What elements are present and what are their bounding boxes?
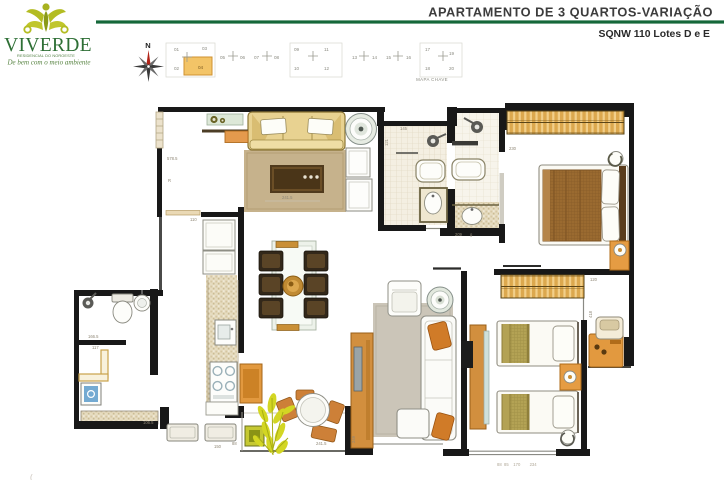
svg-text:18: 18 <box>425 66 431 71</box>
svg-text:88 85 170 234: 88 85 170 234 <box>497 462 537 467</box>
svg-text:10: 10 <box>294 66 300 71</box>
svg-text:14: 14 <box>372 55 378 60</box>
svg-text:08: 08 <box>274 55 280 60</box>
svg-text:R: R <box>168 178 171 183</box>
svg-text:230: 230 <box>509 146 517 151</box>
svg-text:MAPA CHAVE: MAPA CHAVE <box>416 77 448 82</box>
svg-text:117: 117 <box>92 345 99 350</box>
svg-text:241.5: 241.5 <box>282 195 293 200</box>
svg-text:106.5: 106.5 <box>143 420 154 425</box>
svg-text:09: 09 <box>294 47 300 52</box>
svg-text:07: 07 <box>254 55 260 60</box>
svg-text:N: N <box>145 41 150 50</box>
svg-text:01: 01 <box>174 47 180 52</box>
svg-text:166.5: 166.5 <box>88 334 99 339</box>
svg-text:120: 120 <box>590 277 598 282</box>
svg-text:SQNW 110 Lotes D e E: SQNW 110 Lotes D e E <box>599 29 711 40</box>
svg-text:( ˌˌ: ( ˌˌ <box>30 473 40 480</box>
svg-text:02: 02 <box>174 66 180 71</box>
svg-text:110: 110 <box>190 217 197 222</box>
svg-text:12: 12 <box>324 66 330 71</box>
svg-text:88: 88 <box>232 441 237 446</box>
svg-text:17: 17 <box>425 47 431 52</box>
svg-text:145: 145 <box>400 126 408 131</box>
svg-text:19: 19 <box>449 51 455 56</box>
svg-text:APARTAMENTO DE 3 QUARTOS-VARIA: APARTAMENTO DE 3 QUARTOS-VARIAÇÃO <box>428 5 713 20</box>
svg-text:578.5: 578.5 <box>167 156 178 161</box>
svg-text:11: 11 <box>324 47 329 52</box>
svg-text:06: 06 <box>240 55 246 60</box>
svg-text:209: 209 <box>455 232 463 237</box>
svg-text:150: 150 <box>214 444 222 449</box>
svg-text:05: 05 <box>220 55 226 60</box>
svg-text:20: 20 <box>449 66 455 71</box>
svg-text:249: 249 <box>351 435 356 443</box>
svg-text:241.5: 241.5 <box>316 441 327 446</box>
svg-text:121: 121 <box>384 138 389 146</box>
svg-text:13: 13 <box>352 55 358 60</box>
svg-text:15: 15 <box>386 55 392 60</box>
svg-text:RESIDENCIAL DO NOROESTE: RESIDENCIAL DO NOROESTE <box>17 53 75 58</box>
svg-text:16: 16 <box>406 55 412 60</box>
svg-text:De bem com o meio ambiente: De bem com o meio ambiente <box>6 59 90 67</box>
svg-text:03: 03 <box>202 46 208 51</box>
svg-text:418: 418 <box>588 310 593 318</box>
svg-text:04: 04 <box>198 65 204 70</box>
